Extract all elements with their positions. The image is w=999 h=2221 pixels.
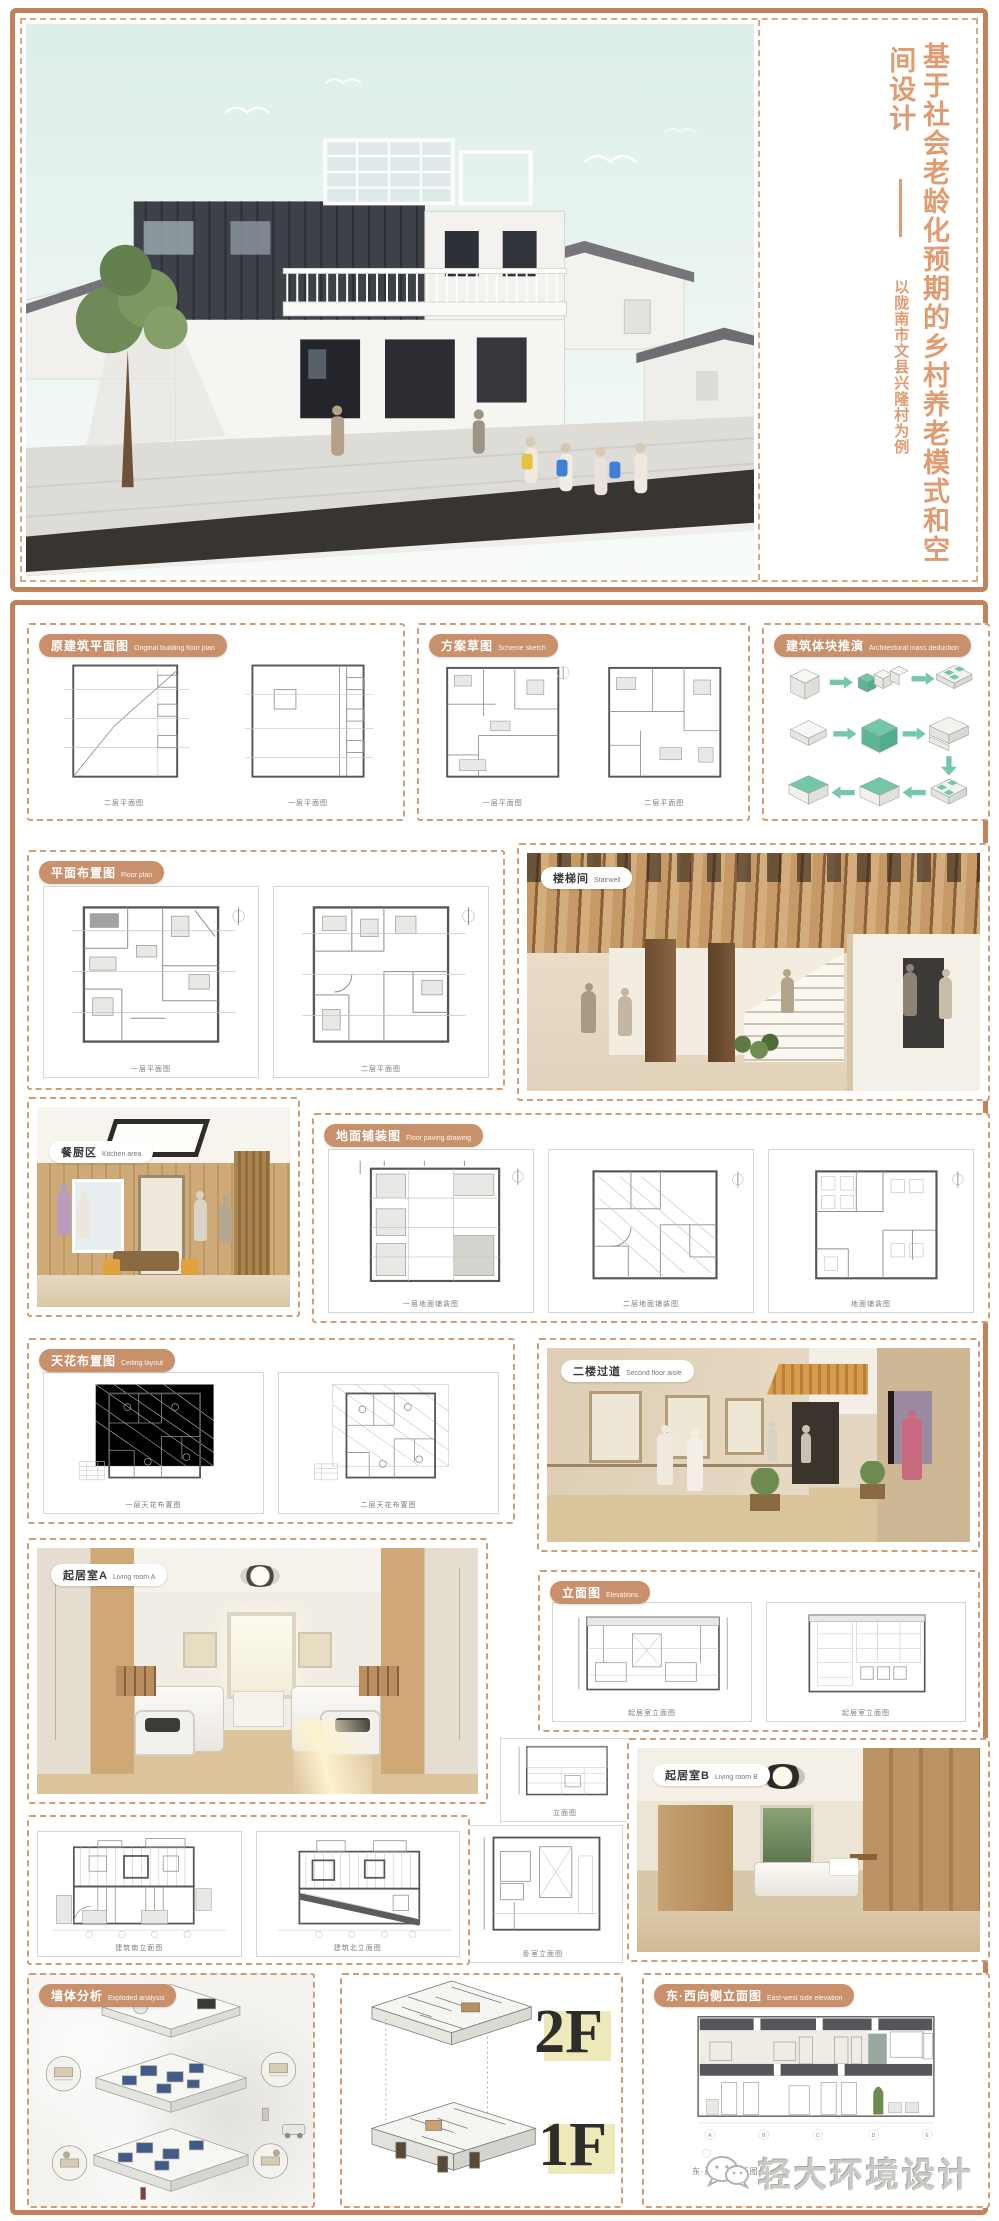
plan-caption: 一层地面铺装图 xyxy=(329,1297,533,1312)
floor-label-1f: 1F xyxy=(538,2114,607,2176)
plant xyxy=(750,1468,780,1511)
detail-caption: 立面图 xyxy=(501,1806,629,1821)
svg-text:D: D xyxy=(872,2133,876,2139)
artwork xyxy=(760,1805,814,1868)
person-figure xyxy=(801,1433,811,1463)
elevation-card: 起居室立面图 xyxy=(766,1602,966,1722)
detail-caption: 卧室立面图 xyxy=(464,1947,622,1962)
elevation-caption: 建筑南立面图 xyxy=(38,1941,241,1956)
studio-logo-text: 轻大环境设计 xyxy=(758,2148,974,2196)
interior-elev-badge: 立面图 Elevations xyxy=(550,1581,650,1604)
wall-frame xyxy=(725,1398,765,1454)
person-figure xyxy=(57,1191,71,1235)
plan-card: 二层天花布置图 xyxy=(278,1372,499,1514)
badge-zh: 方案草图 xyxy=(441,637,493,654)
badge-zh: 起居室B xyxy=(665,1767,710,1783)
plan-caption: 地面铺装图 xyxy=(769,1297,973,1312)
exploded-axon-diagram xyxy=(29,1975,313,2206)
badge-en: East-west side elevation xyxy=(767,1995,842,2002)
nightstand xyxy=(233,1691,284,1727)
north-elevation-drawing xyxy=(257,1832,460,1941)
plan-caption: 一层平面图 xyxy=(223,796,393,811)
panel-exploded: 墙体分析 Exploded analysis xyxy=(27,1973,315,2208)
scheme-sketch-drawings: 一层平面图 二层平面图 xyxy=(429,651,738,811)
ceiling-drawings: 一层天花布置图 二层天花布置图 xyxy=(43,1372,499,1514)
wall-frame xyxy=(589,1391,642,1463)
living-b-badge: 起居室B Living room B xyxy=(653,1764,770,1786)
title-dash xyxy=(899,179,902,237)
person-figure xyxy=(903,972,917,1016)
person-figure xyxy=(77,1199,90,1239)
badge-en: Floor paving drawing xyxy=(406,1135,471,1142)
badge-zh: 地面铺装图 xyxy=(336,1127,401,1144)
panel-living-a: 起居室A Living room A xyxy=(27,1538,488,1804)
elevation-card: 建筑南立面图 xyxy=(37,1831,242,1957)
orange-slat-ceiling xyxy=(767,1364,869,1395)
handrail xyxy=(547,1464,801,1467)
panel-paving: 地面铺装图 Floor paving drawing xyxy=(312,1113,990,1323)
panel-floor-plan: 平面布置图 Floor plan xyxy=(27,850,505,1090)
plan-drawing xyxy=(591,651,739,796)
stairwell-badge: 楼梯间 Stairwell xyxy=(541,867,632,889)
person-figure xyxy=(687,1437,703,1491)
exploded-badge: 墙体分析 Exploded analysis xyxy=(39,1984,176,2007)
plan-drawing xyxy=(769,1150,973,1297)
panel-living-b: 起居室B Living room B xyxy=(627,1738,990,1962)
artwork xyxy=(298,1632,333,1668)
poster-root: 基于社会老龄化预期的乡村养老模式和空 间设计 以陇南市文县兴隆村为例 原建筑平面… xyxy=(0,0,999,2221)
plan-drawing xyxy=(223,651,393,796)
living-a-render: 起居室A Living room A xyxy=(37,1548,478,1794)
plan-caption: 一层平面图 xyxy=(429,796,577,811)
plan-card: 一层天花布置图 xyxy=(43,1372,264,1514)
person-figure xyxy=(219,1203,232,1243)
building-elev-drawings: 建筑南立面图 建筑北立面图 xyxy=(37,1831,460,1957)
aisle-render: 二楼过道 Second floor aisle xyxy=(547,1348,970,1542)
panel-ceiling: 天花布置图 Ceiling layout 一层天花布置图 xyxy=(27,1338,515,1524)
elevation-drawing xyxy=(553,1603,751,1706)
wechat-icon xyxy=(704,2153,750,2191)
end-doorway xyxy=(792,1402,839,1483)
title-wrap-text: 间设计 xyxy=(885,46,915,133)
plan-caption: 二层平面图 xyxy=(274,1062,488,1077)
plan-caption: 二层平面图 xyxy=(39,796,209,811)
badge-en: Ceiling layout xyxy=(121,1360,163,1367)
person-figure xyxy=(618,996,632,1036)
poster-title: 基于社会老龄化预期的乡村养老模式和空 间设计 以陇南市文县兴隆村为例 xyxy=(883,42,951,564)
sunlight-patch xyxy=(293,1720,372,1794)
badge-zh: 东·西向侧立面图 xyxy=(666,1987,762,2004)
living-b-render: 起居室B Living room B xyxy=(637,1748,980,1952)
floor-plan-drawings: 一层平面图 二层平面图 xyxy=(43,886,489,1078)
plan-drawing xyxy=(329,1150,533,1297)
original-plan-drawings: 二层平面图 一层平面图 xyxy=(39,651,393,811)
badge-en: Living room B xyxy=(715,1774,758,1781)
right-wardrobe xyxy=(381,1548,478,1774)
stairwell-render: 楼梯间 Stairwell xyxy=(527,853,980,1091)
cubby-shelf xyxy=(116,1666,156,1696)
badge-zh: 立面图 xyxy=(562,1584,601,1601)
south-elevation-drawing xyxy=(38,1832,241,1941)
ceiling-light xyxy=(240,1565,280,1587)
elevation-caption: 建筑北立面图 xyxy=(257,1941,460,1956)
person-figure xyxy=(194,1199,207,1241)
badge-en: Elevations xyxy=(606,1592,638,1599)
artwork xyxy=(183,1632,218,1668)
window xyxy=(227,1612,297,1699)
person-figure xyxy=(657,1433,673,1485)
floor-plan-badge: 平面布置图 Floor plan xyxy=(39,861,164,884)
svg-text:B: B xyxy=(762,2133,766,2139)
badge-zh: 平面布置图 xyxy=(51,864,116,881)
person-figure xyxy=(581,991,596,1033)
badge-en: Living room A xyxy=(113,1574,155,1581)
plan-card: 一层平面图 xyxy=(429,651,577,811)
hero-inner-frame: 基于社会老龄化预期的乡村养老模式和空 间设计 以陇南市文县兴隆村为例 xyxy=(20,18,978,582)
paving-badge: 地面铺装图 Floor paving drawing xyxy=(324,1124,483,1147)
floor-label-2f: 2F xyxy=(534,2001,603,2063)
panel-kitchen: 餐厨区 Kitchen area xyxy=(27,1097,300,1317)
svg-text:A: A xyxy=(708,2133,712,2139)
plan-drawing xyxy=(44,887,258,1062)
badge-zh: 墙体分析 xyxy=(51,1987,103,2004)
plant xyxy=(860,1461,885,1500)
living-a-badge: 起居室A Living room A xyxy=(51,1564,167,1586)
plan-caption: 一层平面图 xyxy=(44,1062,258,1077)
panel-section: 东·西向侧立面图 East-west side elevation xyxy=(642,1973,990,2208)
wardrobe-lines xyxy=(459,1568,460,1740)
plan-caption: 二层地面铺装图 xyxy=(549,1297,753,1312)
plan-card: 一层平面图 xyxy=(223,651,393,811)
hero-render-image xyxy=(26,24,754,576)
plan-card: 二层平面图 xyxy=(39,651,209,811)
detail-card: 立面图 xyxy=(500,1738,630,1822)
ceiling-badge: 天花布置图 Ceiling layout xyxy=(39,1349,175,1372)
badge-en: Kitchen area xyxy=(102,1151,141,1158)
studio-logo: 轻大环境设计 xyxy=(704,2148,974,2196)
plan-card: 一层地面铺装图 xyxy=(328,1149,534,1313)
scheme-sketch-badge: 方案草图 Scheme sketch xyxy=(429,634,558,657)
elevation-drawing xyxy=(767,1603,965,1706)
person-figure xyxy=(781,977,794,1013)
plan-card: 二层平面图 xyxy=(591,651,739,811)
badge-en: Original building floor plan xyxy=(134,645,215,652)
plan-drawing xyxy=(549,1150,753,1297)
section-drawing: ABCDE xyxy=(644,2005,988,2165)
badge-zh: 原建筑平面图 xyxy=(51,637,129,654)
badge-zh: 天花布置图 xyxy=(51,1352,116,1369)
content-board: 原建筑平面图 Original building floor plan 二层平面… xyxy=(10,600,988,2215)
plan-card: 二层平面图 xyxy=(273,886,489,1078)
elevation-card: 建筑北立面图 xyxy=(256,1831,461,1957)
title-main-line: 基于社会老龄化预期的乡村养老模式和空 xyxy=(916,42,950,564)
section-badge: 东·西向侧立面图 East-west side elevation xyxy=(654,1984,854,2007)
interior-elev-drawings: 起居室立面图 起居室立面图 xyxy=(552,1602,966,1722)
badge-en: Exploded analysis xyxy=(108,1995,164,2002)
wardrobe-lines xyxy=(55,1568,56,1740)
plan-card: 一层平面图 xyxy=(43,886,259,1078)
panel-detail-small: 立面图 xyxy=(500,1738,630,1822)
detail-drawing xyxy=(501,1739,629,1806)
panel-interior-elev: 立面图 Elevations 起居室立面图 xyxy=(538,1570,980,1732)
panel-building-elev: 建筑南立面图 建筑北立面图 xyxy=(27,1815,470,1965)
bed-screen-left-window xyxy=(145,1718,180,1733)
badge-en: Second floor aisle xyxy=(626,1370,682,1377)
massing-badge: 建筑体块推演 Architectural mass deduction xyxy=(774,634,971,657)
paving-drawings: 一层地面铺装图 二层地面铺装图 xyxy=(328,1149,974,1313)
badge-zh: 餐厨区 xyxy=(61,1144,97,1160)
floor xyxy=(637,1911,980,1952)
person-figure xyxy=(767,1429,777,1461)
svg-text:E: E xyxy=(925,2133,929,2139)
badge-zh: 楼梯间 xyxy=(553,870,589,886)
plan-caption: 二层平面图 xyxy=(591,796,739,811)
badge-en: Scheme sketch xyxy=(498,645,546,652)
massing-diagram xyxy=(770,653,982,813)
plan-drawing xyxy=(39,651,209,796)
cubby-shelf xyxy=(359,1666,399,1696)
person-figure-pink-jacket xyxy=(902,1418,922,1480)
panel-scheme-sketch: 方案草图 Scheme sketch 一层平面图 xyxy=(417,623,750,821)
badge-en: Floor plan xyxy=(121,872,152,879)
plan-drawing xyxy=(274,887,488,1062)
plan-drawing xyxy=(429,651,577,796)
panel-aisle: 二楼过道 Second floor aisle xyxy=(537,1338,980,1552)
badge-zh: 起居室A xyxy=(63,1567,108,1583)
kitchen-badge: 餐厨区 Kitchen area xyxy=(49,1141,153,1163)
panel-axon-floors: 2F 1F xyxy=(340,1973,623,2208)
panel-massing: 建筑体块推演 Architectural mass deduction xyxy=(762,623,990,821)
title-strip: 基于社会老龄化预期的乡村养老模式和空 间设计 以陇南市文县兴隆村为例 xyxy=(758,20,976,580)
dining-table xyxy=(113,1251,179,1271)
bed-pillow xyxy=(829,1858,858,1876)
kitchen-render: 餐厨区 Kitchen area xyxy=(37,1107,290,1307)
badge-en: Stairwell xyxy=(594,877,620,884)
svg-text:C: C xyxy=(816,2133,820,2139)
hero-building-illustration xyxy=(26,24,754,576)
badge-zh: 二楼过道 xyxy=(573,1363,621,1379)
hero-board: 基于社会老龄化预期的乡村养老模式和空 间设计 以陇南市文县兴隆村为例 xyxy=(10,8,988,592)
aisle-badge: 二楼过道 Second floor aisle xyxy=(561,1360,694,1382)
wood-column xyxy=(645,939,677,1063)
badge-zh: 建筑体块推演 xyxy=(786,637,864,654)
panel-original-plan: 原建筑平面图 Original building floor plan 二层平面… xyxy=(27,623,405,821)
plan-card: 二层地面铺装图 xyxy=(548,1149,754,1313)
detail-card: 卧室立面图 xyxy=(463,1825,623,1963)
plan-drawing xyxy=(279,1373,498,1498)
original-plan-badge: 原建筑平面图 Original building floor plan xyxy=(39,634,227,657)
title-wrap-line: 间设计 以陇南市文县兴隆村为例 xyxy=(883,46,917,564)
plan-card: 地面铺装图 xyxy=(768,1149,974,1313)
plan-caption: 二层天花布置图 xyxy=(279,1498,498,1513)
panel-detail-large: 卧室立面图 xyxy=(463,1825,623,1963)
panel-stairwell: 楼梯间 Stairwell xyxy=(517,843,990,1101)
detail-drawing xyxy=(464,1826,622,1947)
elevation-card: 起居室立面图 xyxy=(552,1602,752,1722)
badge-en: Architectural mass deduction xyxy=(869,645,959,652)
stair-plants xyxy=(726,1029,780,1067)
slat-partition xyxy=(234,1151,269,1291)
plan-drawing xyxy=(44,1373,263,1498)
plan-caption: 一层天花布置图 xyxy=(44,1498,263,1513)
elevation-caption: 起居室立面图 xyxy=(553,1706,751,1721)
title-subtitle: 以陇南市文县兴隆村为例 xyxy=(892,279,909,455)
elevation-caption: 起居室立面图 xyxy=(767,1706,965,1721)
floor xyxy=(37,1275,290,1307)
person-figure xyxy=(939,977,952,1019)
